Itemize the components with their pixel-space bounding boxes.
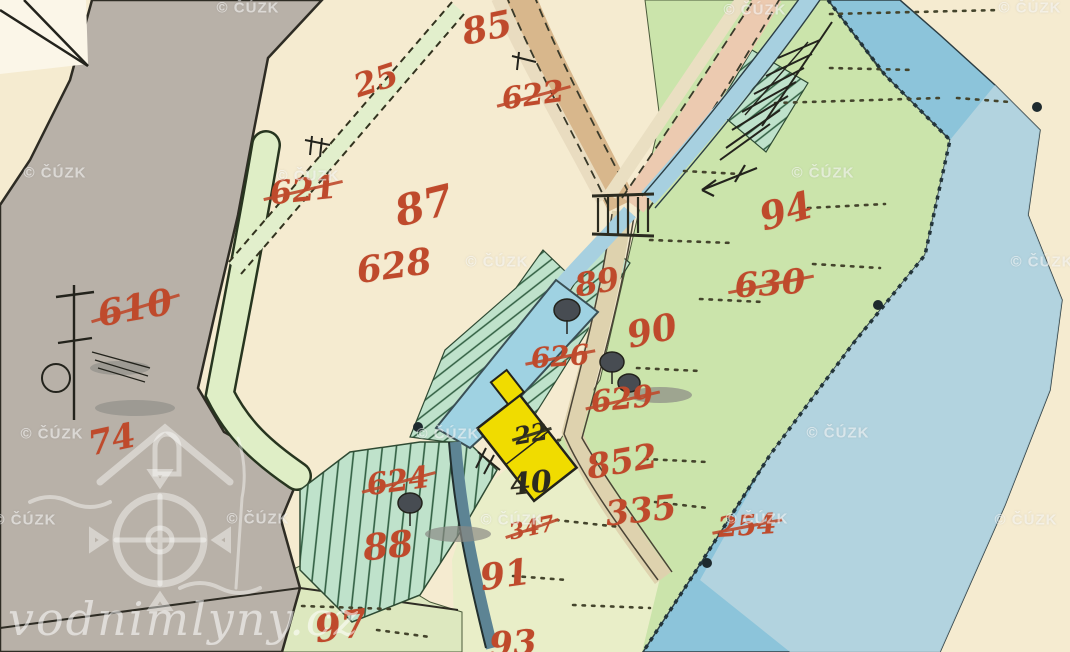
- cuzk-watermark: © ČÚZK: [466, 254, 529, 271]
- parcel-number-628: 628: [354, 243, 433, 289]
- cuzk-watermark: © ČÚZK: [726, 511, 789, 528]
- parcel-number-629: 629: [589, 382, 654, 418]
- cuzk-watermark: © ČÚZK: [807, 425, 870, 442]
- parcel-number-335: 335: [604, 490, 678, 531]
- parcel-number-622: 622: [500, 77, 566, 115]
- parcel-number-88: 88: [361, 525, 415, 566]
- parcel-number-85: 85: [459, 5, 515, 51]
- parcel-number-852: 852: [584, 439, 660, 485]
- vodnimlyny-watermark-logo: [0, 420, 320, 620]
- building-number-40: 40: [509, 467, 554, 501]
- parcel-number-626: 626: [530, 341, 590, 373]
- parcel-number-90: 90: [624, 308, 680, 354]
- parcel-number-87: 87: [391, 179, 458, 234]
- parcel-number-624: 624: [365, 463, 431, 501]
- parcel-number-610: 610: [95, 284, 175, 333]
- parcel-number-89: 89: [572, 262, 621, 301]
- cuzk-watermark: © ČÚZK: [417, 426, 480, 443]
- cuzk-watermark: © ČÚZK: [724, 2, 787, 19]
- cuzk-watermark: © ČÚZK: [792, 165, 855, 182]
- parcel-number-93: 93: [488, 625, 538, 652]
- map-viewport: 8562225621876286107494630896269062985233…: [0, 0, 1070, 652]
- cuzk-watermark: © ČÚZK: [277, 168, 340, 185]
- parcel-number-91: 91: [478, 554, 533, 597]
- cuzk-watermark: © ČÚZK: [999, 0, 1062, 17]
- building-number-22: 22: [512, 419, 549, 448]
- cuzk-watermark: © ČÚZK: [481, 512, 544, 529]
- parcel-number-25: 25: [350, 58, 402, 102]
- cuzk-watermark: © ČÚZK: [24, 165, 87, 182]
- cuzk-watermark: © ČÚZK: [1011, 254, 1070, 271]
- parcel-number-630: 630: [733, 265, 806, 304]
- cuzk-watermark: © ČÚZK: [217, 0, 280, 17]
- cuzk-watermark: © ČÚZK: [995, 512, 1058, 529]
- vodnimlyny-watermark-text: vodnimlyny.cz: [8, 592, 408, 646]
- parcel-number-94: 94: [755, 185, 816, 236]
